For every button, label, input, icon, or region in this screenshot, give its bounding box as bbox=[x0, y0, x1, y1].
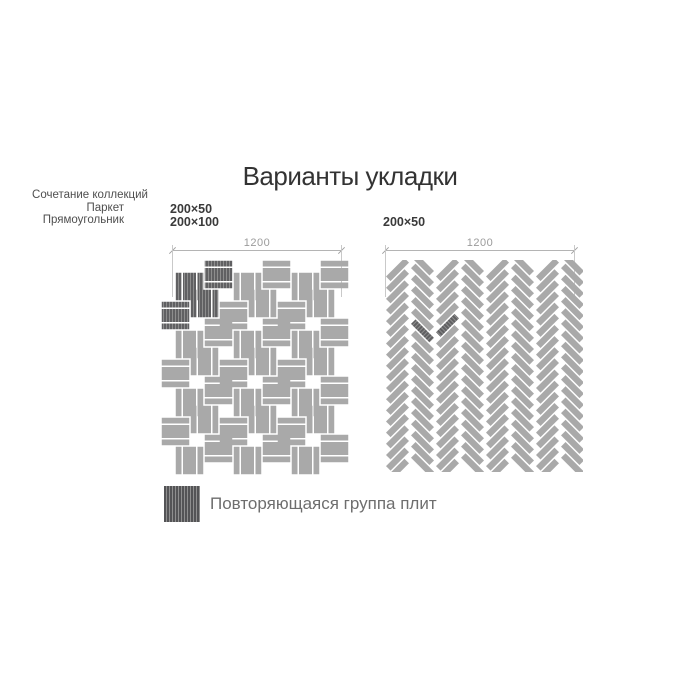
legend: Повторяющаяся группа плит bbox=[164, 486, 437, 522]
collection-note-line-2: Паркет bbox=[20, 202, 124, 215]
right-dimension-label: 1200 bbox=[385, 237, 575, 249]
repeating-group-swatch-icon bbox=[164, 486, 200, 522]
right-tile-sizes: 200×50 bbox=[383, 216, 425, 229]
parquet-pattern-diagram bbox=[156, 256, 370, 486]
legend-label: Повторяющаяся группа плит bbox=[210, 494, 437, 514]
collection-note: Сочетание коллекций Паркет Прямоугольник bbox=[20, 189, 148, 227]
left-tile-sizes: 200×50 200×100 bbox=[170, 203, 219, 228]
parquet-pattern-svg bbox=[156, 256, 370, 486]
collection-note-line-1: Сочетание коллекций bbox=[20, 189, 148, 202]
right-tile-size-1: 200×50 bbox=[383, 216, 425, 229]
left-dimension-label: 1200 bbox=[172, 237, 342, 249]
collection-note-line-3: Прямоугольник bbox=[20, 214, 124, 227]
left-tile-size-1: 200×50 bbox=[170, 203, 219, 216]
herringbone-pattern-svg bbox=[383, 260, 583, 472]
left-dimension: 1200 bbox=[172, 240, 342, 251]
dimension-line bbox=[172, 250, 342, 251]
dimension-line bbox=[385, 250, 575, 251]
page-title: Варианты укладки bbox=[0, 161, 700, 192]
right-dimension: 1200 bbox=[385, 240, 575, 251]
herringbone-pattern-diagram bbox=[383, 260, 583, 472]
left-tile-size-2: 200×100 bbox=[170, 216, 219, 229]
